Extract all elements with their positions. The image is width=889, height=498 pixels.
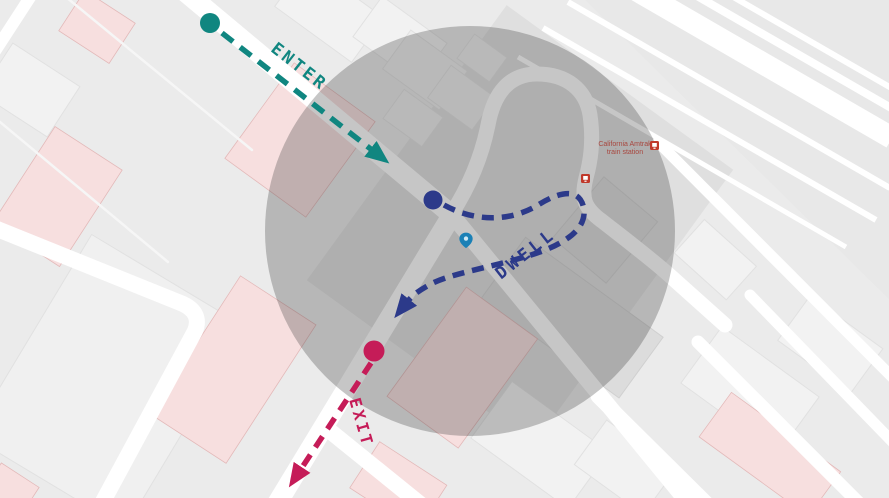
rail-station-icon (650, 141, 659, 150)
geofence-circle (265, 26, 675, 436)
exit-start-dot (364, 341, 385, 362)
dwell-start-dot (424, 191, 443, 210)
rail-station-icon (581, 174, 590, 183)
station-poi-label-line2: train station (607, 149, 643, 156)
map-svg: California Amtrak train station ENTER DW… (0, 0, 889, 498)
map-canvas: California Amtrak train station ENTER DW… (0, 0, 889, 498)
enter-start-dot (200, 13, 220, 33)
station-poi-label-line1: California Amtrak (598, 141, 652, 148)
